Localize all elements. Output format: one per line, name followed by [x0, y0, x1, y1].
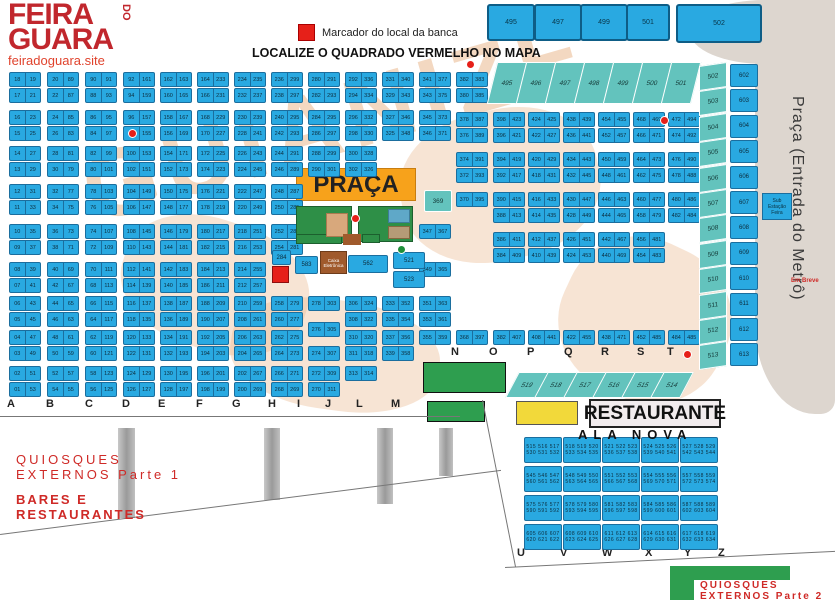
stall-number: 348: [398, 127, 414, 140]
stall-pair-C: 80101: [85, 162, 117, 177]
ala-nova-stall-block: 608 609 610623 624 625: [563, 524, 601, 550]
stall-pair-R: 454455: [598, 112, 630, 127]
stall-608: 608: [730, 216, 758, 239]
logo-site-url[interactable]: feiradoguara.site: [8, 53, 158, 68]
stall-number: 104: [124, 185, 139, 198]
stall-pair-H: 242293: [271, 126, 303, 141]
stall-pair-H: 260277: [271, 312, 303, 327]
stall-number: 443: [579, 153, 595, 166]
stall-pair-I: 284295: [308, 110, 340, 125]
stall-number: 356: [398, 331, 414, 344]
stall-number: 471: [649, 129, 665, 142]
legend-red-square-icon: [298, 24, 315, 41]
stall-number: 84: [86, 127, 101, 140]
stall-number: 390: [494, 193, 509, 206]
stall-pair-I: 288299: [308, 146, 340, 161]
stall-number: 70: [86, 263, 101, 276]
stall-pair-Q: 432445: [563, 168, 595, 183]
stall-pair-E: 146179: [160, 224, 192, 239]
stall-number: 476: [669, 153, 684, 166]
stall-number: 469: [614, 249, 630, 262]
stall-number: 294: [346, 89, 361, 102]
stall-pair-E: 158167: [160, 110, 192, 125]
stall-pair-G: 220249: [234, 200, 266, 215]
stall-number: 11: [10, 201, 25, 214]
stall-pair-C: 58123: [85, 366, 117, 381]
stall-number: 24: [48, 111, 63, 124]
stall-number: 462: [634, 169, 649, 182]
stall-pair-A: 0839: [9, 262, 41, 277]
stall-number: 424: [564, 249, 579, 262]
stall-number: 14: [10, 147, 25, 160]
column-letter-P: P: [527, 346, 534, 358]
stall-number: 114: [124, 279, 139, 292]
stall-number: 488: [684, 169, 700, 182]
stall-number: 219: [213, 201, 229, 214]
stall-number: 29: [25, 163, 41, 176]
stall-number: 314: [361, 367, 377, 380]
stall-number: 278: [309, 297, 324, 310]
stall-number: 311: [324, 383, 340, 396]
stall-pair-G: 206263: [234, 330, 266, 345]
stall-number: 97: [101, 127, 117, 140]
stall-pair-G: 230239: [234, 110, 266, 125]
stall-pair-N: 372393: [456, 168, 488, 183]
stall-number: 103: [101, 185, 117, 198]
stall-number: 246: [272, 163, 287, 176]
stall-pair-A: 1721: [9, 88, 41, 103]
stall-number: 623 624 625: [565, 537, 598, 543]
stall-number: 340: [398, 73, 414, 86]
stall-pair-Q: 438439: [563, 112, 595, 127]
stall-number: 345: [420, 111, 435, 124]
stall-number: 224: [235, 163, 250, 176]
stall-pair-C: 70111: [85, 262, 117, 277]
stall-number: 120: [124, 331, 139, 344]
stall-number: 86: [86, 111, 101, 124]
ala-nova-stall-block: 551 552 553566 567 568: [602, 466, 640, 492]
stall-number: 48: [48, 331, 63, 344]
stall-number: 210: [235, 297, 250, 310]
stall-pair-D: 92161: [123, 72, 155, 87]
stall-number: 212: [235, 279, 250, 292]
stall-number: 75: [63, 201, 79, 214]
stall-number: 455: [579, 331, 595, 344]
stall-number: 326: [361, 163, 377, 176]
stall-number: 286: [309, 127, 324, 140]
stall-number: 388: [494, 209, 509, 222]
stall-number: 226: [235, 147, 250, 160]
stall-pair-B: 2485: [47, 110, 79, 125]
stall-pair-A: 0937: [9, 240, 41, 255]
stall-number: 191: [176, 331, 192, 344]
stall-pair-A: 1035: [9, 224, 41, 239]
stall-pair-M: 347367: [419, 224, 451, 239]
stall-number: 118: [124, 313, 139, 326]
stall-604: 604: [730, 115, 758, 138]
stall-number: 112: [124, 263, 139, 276]
stall-number: 298: [346, 127, 361, 140]
stall-number: 80: [86, 163, 101, 176]
stall-number: 182: [198, 241, 213, 254]
stall-pair-C: 64117: [85, 312, 117, 327]
stall-609: 609: [730, 242, 758, 265]
praca-green-structure: [362, 234, 380, 243]
stall-number: 257: [250, 279, 266, 292]
stall-pair-B: 5455: [47, 382, 79, 397]
stall-number: 367: [435, 225, 451, 238]
quiosques-parte1-label: QUIOSQUES EXTERNOS Parte 1: [16, 452, 181, 482]
stall-number: 259: [250, 297, 266, 310]
stall-number: 165: [176, 89, 192, 102]
stall-pair-P: 422427: [528, 128, 560, 143]
stall-number: 363: [435, 297, 451, 310]
ala-nova-stall-block: 578 579 580593 594 595: [563, 495, 601, 521]
stall-number: 266: [272, 367, 287, 380]
stall-number: 339: [383, 347, 398, 360]
column-letter-J: J: [325, 398, 331, 410]
stall-number: 234: [235, 73, 250, 86]
stall-pair-E: 154171: [160, 146, 192, 161]
stall-pair-D: 108145: [123, 224, 155, 239]
stall-pair-B: 3079: [47, 162, 79, 177]
stall-number: 271: [287, 367, 303, 380]
stall-pair-B: 2683: [47, 126, 79, 141]
stall-number: 293: [324, 89, 340, 102]
stall-number: 161: [139, 73, 155, 86]
stall-pair-E: 162163: [160, 72, 192, 87]
stall-pair-O: 398423: [493, 112, 525, 127]
stall-number: 151: [139, 163, 155, 176]
quiosques-parte2-line2: EXTERNOS Parte 2: [700, 591, 823, 600]
quiosques-parte2-line1: QUIOSQUES: [700, 580, 823, 591]
stall-number: 453: [579, 249, 595, 262]
stall-number: 629 630 631: [643, 537, 676, 543]
stall-number: 215: [213, 241, 229, 254]
stall-pair-A: 1231: [9, 184, 41, 199]
stall-number: 590 591 592: [526, 508, 559, 514]
stall-pair-L: 327346: [382, 110, 414, 125]
stall-number: 152: [161, 163, 176, 176]
stall-613: 613: [730, 343, 758, 366]
stall-number: 325: [383, 127, 398, 140]
numbered-marker-icon: [351, 214, 360, 223]
stall-number: 202: [235, 367, 250, 380]
stall-number: 123: [101, 367, 117, 380]
stall-number: 229: [213, 111, 229, 124]
stall-pair-H: 248287: [271, 184, 303, 199]
stall-number: 31: [25, 185, 41, 198]
stall-pair-F: 194203: [197, 346, 229, 361]
stall-number: 377: [435, 73, 451, 86]
ala-nova-stall-block: 605 606 607620 621 622: [524, 524, 562, 550]
stall-pair-I: 276305: [308, 322, 340, 337]
stall-pair-C: 76105: [85, 200, 117, 215]
column-letter-T: T: [667, 346, 674, 358]
stall-number: 352: [398, 297, 414, 310]
stall-number: 15: [10, 127, 25, 140]
stall-pair-H: 262275: [271, 330, 303, 345]
stall-pair-R: 442467: [598, 232, 630, 247]
stall-number: 418: [529, 169, 544, 182]
stall-number: 143: [139, 241, 155, 254]
stall-number: 82: [86, 147, 101, 160]
stall-pair-S: 452485: [633, 330, 665, 345]
stall-pair-T: 484485: [668, 330, 700, 345]
stall-number: 395: [472, 193, 488, 206]
stall-number: 27: [25, 147, 41, 160]
stall-pair-B: 2881: [47, 146, 79, 161]
stall-number: 448: [599, 169, 614, 182]
stall-number: 122: [124, 347, 139, 360]
stall-pair-R: 450459: [598, 152, 630, 167]
ala-nova-stall-block: 587 588 589602 603 604: [680, 495, 718, 521]
stall-number: 287: [287, 185, 303, 198]
stall-number: 474: [669, 129, 684, 142]
stall-number: 569 570 571: [643, 479, 676, 485]
stall-pair-L: 329343: [382, 88, 414, 103]
stall-number: 309: [324, 367, 340, 380]
stall-number: 225: [213, 147, 229, 160]
stall-pair-I: 286297: [308, 126, 340, 141]
stall-number: 485: [684, 331, 700, 344]
stall-pair-C: 66115: [85, 296, 117, 311]
stall-number: 01: [10, 383, 25, 396]
stall-number: 440: [599, 249, 614, 262]
stall-number: 376: [457, 129, 472, 142]
stall-number: 297: [324, 127, 340, 140]
stall-number: 136: [161, 313, 176, 326]
stall-number: 415: [509, 193, 525, 206]
stall-pair-E: 136189: [160, 312, 192, 327]
stall-number: 121: [101, 347, 117, 360]
stall-number: 365: [435, 263, 451, 276]
stall-pair-F: 184213: [197, 262, 229, 277]
stall-pair-G: 204265: [234, 346, 266, 361]
stall-610: 610: [730, 267, 758, 290]
stall-number: 372: [457, 169, 472, 182]
stall-number: 140: [161, 279, 176, 292]
stall-number: 223: [213, 163, 229, 176]
stall-pair-N: 374391: [456, 152, 488, 167]
stall-number: 85: [63, 111, 79, 124]
stall-number: 299: [287, 73, 303, 86]
stall-number: 148: [161, 201, 176, 214]
stall-pair-H: 266271: [271, 366, 303, 381]
stall-number: 454: [599, 113, 614, 126]
column-letter-E: E: [158, 398, 165, 410]
stall-pair-C: 9091: [85, 72, 117, 87]
stall-number: 486: [684, 193, 700, 206]
stall-number: 446: [599, 193, 614, 206]
stall-number: 57: [63, 367, 79, 380]
stall-pair-D: 110143: [123, 240, 155, 255]
stall-number: 465: [614, 209, 630, 222]
stall-number: 142: [161, 263, 176, 276]
stall-pair-N: 376389: [456, 128, 488, 143]
stall-pair-E: 152173: [160, 162, 192, 177]
stall-number: 483: [649, 249, 665, 262]
stall-number: 459: [614, 153, 630, 166]
stall-number: 89: [63, 73, 79, 86]
stall-513: 513: [699, 341, 727, 370]
stall-number: 484: [684, 209, 700, 222]
pillar: [264, 428, 280, 500]
stall-pair-F: 176221: [197, 184, 229, 199]
stall-number: 95: [101, 111, 117, 124]
stall-number: 322: [361, 313, 377, 326]
stall-number: 593 594 595: [565, 508, 598, 514]
stall-number: 539 540 541: [643, 450, 676, 456]
stall-pair-I: 270311: [308, 382, 340, 397]
stall-number: 566 567 568: [604, 479, 637, 485]
stall-pair-B: 4069: [47, 262, 79, 277]
stall-number: 163: [176, 73, 192, 86]
stall-number: 421: [509, 129, 525, 142]
stall-number: 201: [213, 367, 229, 380]
ala-nova-stall-block: 611 612 613626 627 628: [602, 524, 640, 550]
bares-line2: RESTAURANTES: [16, 507, 146, 522]
stall-number: 383: [472, 73, 488, 86]
stall-pair-L: 339358: [382, 346, 414, 361]
stall-pair-R: 444465: [598, 208, 630, 223]
stall-number: 324: [361, 297, 377, 310]
stall-pair-D: 116137: [123, 296, 155, 311]
stall-pair-H: 246289: [271, 162, 303, 177]
stall-number: 396: [494, 129, 509, 142]
map-title: LOCALIZE O QUADRADO VERMELHO NO MAPA: [252, 46, 541, 60]
stall-number: 113: [101, 279, 117, 292]
stall-number: 422: [529, 129, 544, 142]
stall-number: 333: [383, 297, 398, 310]
stall-number: 293: [287, 127, 303, 140]
stall-number: 189: [176, 313, 192, 326]
stall-number: 109: [101, 241, 117, 254]
praca-gray-structure: [388, 226, 410, 239]
stall-number: 394: [494, 153, 509, 166]
stall-number: 284: [309, 111, 324, 124]
stall-pair-R: 438471: [598, 330, 630, 345]
stall-number: 282: [309, 89, 324, 102]
stall-number: 387: [472, 113, 488, 126]
stall-number: 107: [101, 225, 117, 238]
stall-pair-H: 258279: [271, 296, 303, 311]
stall-number: 17: [10, 89, 25, 102]
stall-number: 26: [48, 127, 63, 140]
stall-number: 102: [124, 163, 139, 176]
stall-number: 384: [494, 249, 509, 262]
stall-pair-F: 188209: [197, 296, 229, 311]
stall-number: 441: [544, 331, 560, 344]
stall-number: 262: [272, 331, 287, 344]
column-letter-D: D: [122, 398, 130, 410]
stall-pair-D: 104149: [123, 184, 155, 199]
ala-nova-stall-block: 554 555 556569 570 571: [641, 466, 679, 492]
stall-612: 612: [730, 318, 758, 341]
stall-pair-G: 216253: [234, 240, 266, 255]
stall-number: 391: [472, 153, 488, 166]
stall-506: 506: [699, 164, 727, 193]
stall-number: 60: [86, 347, 101, 360]
stall-pair-L: 333352: [382, 296, 414, 311]
stall-pair-O: 392417: [493, 168, 525, 183]
stall-pair-G: 234235: [234, 72, 266, 87]
stall-number: 467: [614, 233, 630, 246]
stall-pair-P: 410439: [528, 248, 560, 263]
stall-number: 484: [669, 331, 684, 344]
stall-pair-O: 382407: [493, 330, 525, 345]
stall-pair-I: 272309: [308, 366, 340, 381]
stall-number: 233: [213, 73, 229, 86]
stall-number: 410: [529, 249, 544, 262]
stall-number: 353: [420, 313, 435, 326]
stall-number: 204: [235, 347, 250, 360]
pillar: [377, 428, 393, 504]
stall-number: 230: [235, 111, 250, 124]
stall-number: 38: [48, 241, 63, 254]
stall-number: 572 573 574: [682, 479, 715, 485]
stall-number: 416: [529, 193, 544, 206]
stall-number: 341: [420, 73, 435, 86]
stall-pair-G: 208261: [234, 312, 266, 327]
stall-number: 274: [309, 347, 324, 360]
stall-number: 34: [48, 201, 63, 214]
stall-pair-E: 132193: [160, 346, 192, 361]
stall-number: 331: [383, 73, 398, 86]
stall-pair-C: 8299: [85, 146, 117, 161]
ala-nova-stall-block: 584 585 586599 600 601: [641, 495, 679, 521]
stall-number: 374: [457, 153, 472, 166]
stall-number: 153: [139, 147, 155, 160]
stall-number: 327: [383, 111, 398, 124]
stall-284: 284: [272, 250, 291, 265]
stall-number: 40: [48, 263, 63, 276]
stall-pair-J: 313314: [345, 366, 377, 381]
stall-pair-R: 446463: [598, 192, 630, 207]
stall-number: 54: [48, 383, 63, 396]
stall-pair-Q: 436441: [563, 128, 595, 143]
stall-number: 197: [176, 383, 192, 396]
stall-number: 371: [435, 127, 451, 140]
stall-pair-T: 480486: [668, 192, 700, 207]
stall-number: 346: [398, 111, 414, 124]
restaurante-box: RESTAURANTE: [589, 399, 721, 428]
stall-pair-A: 0153: [9, 382, 41, 397]
column-letter-H: H: [268, 398, 276, 410]
stall-number: 241: [250, 127, 266, 140]
stall-pair-S: 454483: [633, 248, 665, 263]
stall-number: 169: [176, 127, 192, 140]
stall-number: 354: [398, 313, 414, 326]
stall-number: 23: [25, 111, 41, 124]
stall-pair-C: 8893: [85, 88, 117, 103]
stall-number: 368: [457, 331, 472, 344]
stall-pair-A: 0741: [9, 278, 41, 293]
stall-pair-E: 160165: [160, 88, 192, 103]
stall-number: 427: [544, 129, 560, 142]
stall-number: 275: [287, 331, 303, 344]
stall-pair-T: 474492: [668, 128, 700, 143]
stall-number: 174: [198, 163, 213, 176]
stall-number: 110: [124, 241, 139, 254]
column-letter-L: L: [356, 398, 363, 410]
stall-number: 67: [63, 279, 79, 292]
stall-number: 74: [86, 225, 101, 238]
stall-511: 511: [699, 291, 727, 320]
stall-pair-F: 170227: [197, 126, 229, 141]
stall-number: 243: [250, 147, 266, 160]
stall-number: 413: [509, 209, 525, 222]
